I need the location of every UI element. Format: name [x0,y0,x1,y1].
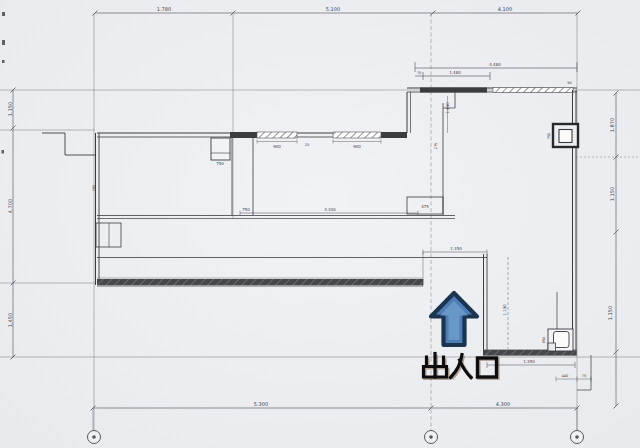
dim-label: 1.450 [7,313,13,327]
dim-label: 250 [92,185,96,192]
dim-label: 750 [547,133,551,140]
dim-label: 1.150 [7,102,13,116]
dim-label: 4.300 [324,207,336,212]
dim-label: 4.300 [496,401,510,407]
dim-label: 275 [434,143,438,150]
dim-label: 75 [582,374,586,378]
dim-label: 4.480 [489,62,501,67]
dim-label: 1.350 [523,359,535,364]
dim-label: 1.350 [450,246,462,251]
dim-label: 4.100 [498,6,512,12]
dim-label: 4.700 [7,199,13,213]
dim-label: 1.150 [607,306,613,320]
dim-label: 900 [353,144,361,149]
dim-label: 900 [273,144,281,149]
dim-label: 1.150 [609,187,615,201]
dim-label: 1.480 [449,70,461,75]
dim-label: 5.100 [326,6,340,12]
dim-label: 70 [417,71,421,75]
dim-label: 750 [216,161,224,166]
floor-plan-page: 1.780 5.100 4.100 5.300 4.300 1.150 4.70… [0,0,640,448]
entrance-label: 出入口 [420,351,498,381]
dim-label: 750 [242,207,250,212]
dim-label: 25 [305,143,309,147]
dim-label: 850 [542,337,546,344]
dim-label: 5.300 [254,401,268,407]
dim-label: 475 [421,204,429,209]
grid-axis-marker [88,431,101,444]
dim-label: 1.780 [157,6,171,12]
dim-label: 90 [567,81,571,85]
dim-label: 1.150 [502,304,507,316]
toilet-fixture [548,329,573,351]
dim-label: 1.870 [609,118,615,132]
grid-axis-marker [425,431,438,444]
dim-label: 440 [562,374,569,378]
floor-plan-canvas: 1.780 5.100 4.100 5.300 4.300 1.150 4.70… [0,0,640,448]
grid-axis-marker [571,431,584,444]
